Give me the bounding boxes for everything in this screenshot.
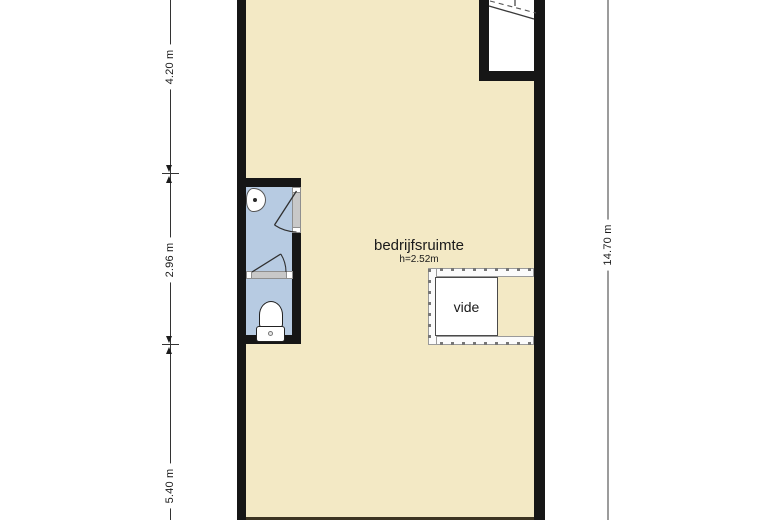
dimension-label-296: 2.96 m	[163, 238, 177, 283]
staircase-wall-left	[479, 0, 489, 81]
vide-railing-top	[428, 268, 534, 277]
dimension-label-540: 5.40 m	[163, 464, 177, 509]
vide-label: vide	[454, 299, 480, 315]
dimension-arrow	[166, 336, 172, 343]
staircase-area	[489, 0, 534, 71]
room-ceiling-height: h=2.52m	[374, 254, 464, 265]
dimension-label-420: 4.20 m	[163, 45, 177, 90]
dimension-tick	[162, 173, 179, 174]
door-opening-toilet	[252, 271, 286, 279]
floorplan-canvas: vide bedrijfsruimte h=2.52m 4.20 m 2.96 …	[0, 0, 780, 520]
dimension-label-1470: 14.70 m	[601, 219, 615, 270]
dimension-arrow	[166, 347, 172, 354]
room-name: bedrijfsruimte	[374, 237, 464, 254]
dimension-arrow	[166, 165, 172, 172]
toilet-tank-icon	[256, 326, 285, 342]
room-label-group: bedrijfsruimte h=2.52m	[374, 237, 464, 265]
door-hinge-cap	[286, 271, 293, 279]
staircase-wall-bottom	[479, 71, 545, 81]
dimension-arrow	[166, 176, 172, 183]
bathroom-wall-top	[237, 178, 301, 187]
toilet-flush-button-icon	[268, 331, 273, 336]
door-hinge-cap	[292, 227, 301, 233]
sink-drain-dot	[253, 198, 257, 202]
vide-railing-bottom	[428, 336, 534, 345]
wall-left	[237, 0, 246, 520]
door-opening-bathroom	[292, 193, 301, 227]
vide-area: vide	[435, 277, 498, 336]
dimension-tick	[162, 344, 179, 345]
